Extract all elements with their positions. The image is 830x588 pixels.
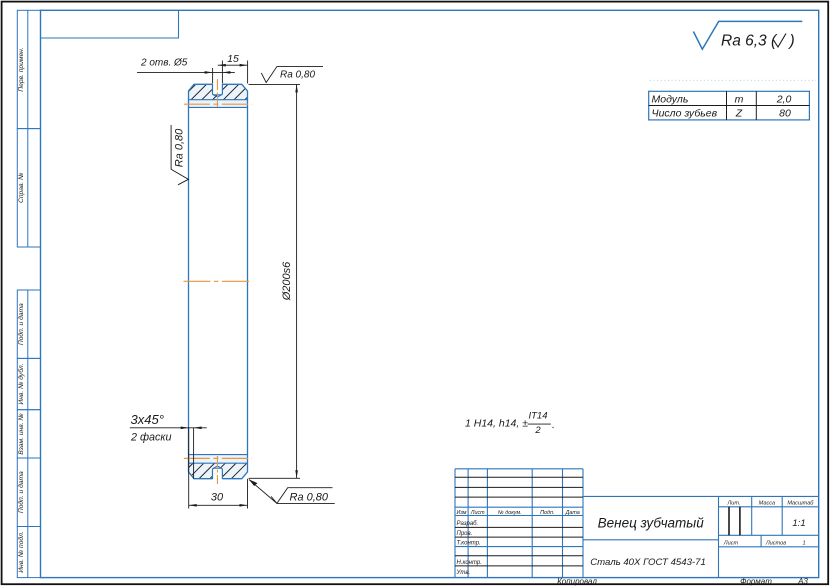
svg-text:№ докум.: № докум. bbox=[498, 510, 522, 516]
svg-text:Лист: Лист bbox=[723, 540, 739, 546]
svg-text:Подп.: Подп. bbox=[540, 510, 554, 516]
svg-text:Масса: Масса bbox=[759, 501, 776, 507]
svg-text:Модуль: Модуль bbox=[652, 94, 689, 106]
svg-text:80: 80 bbox=[779, 108, 791, 120]
svg-text:1 Н14, h14, ±: 1 Н14, h14, ± bbox=[465, 418, 528, 430]
svg-text:2 фаски: 2 фаски bbox=[130, 432, 172, 444]
svg-text:Справ. №: Справ. № bbox=[18, 173, 25, 203]
svg-text:2: 2 bbox=[534, 425, 541, 436]
svg-text:Z: Z bbox=[735, 108, 743, 120]
svg-text:30: 30 bbox=[211, 492, 224, 504]
svg-text:Взам. инв. №: Взам. инв. № bbox=[18, 413, 25, 454]
svg-text:15: 15 bbox=[227, 53, 239, 65]
svg-text:Подп. и дата: Подп. и дата bbox=[17, 303, 25, 345]
svg-text:Ra 0,80: Ra 0,80 bbox=[174, 128, 186, 167]
svg-text:Ra 6,3 (: Ra 6,3 ( bbox=[721, 33, 778, 50]
svg-text:Масштаб: Масштаб bbox=[787, 501, 814, 507]
svg-text:Дата: Дата bbox=[565, 510, 580, 516]
svg-text:Инв. № дубл.: Инв. № дубл. bbox=[17, 363, 25, 404]
svg-text:1:1: 1:1 bbox=[792, 518, 805, 529]
svg-text:Изм: Изм bbox=[457, 510, 467, 516]
svg-text:3х45°: 3х45° bbox=[131, 412, 164, 427]
svg-text:Инв. № подл.: Инв. № подл. bbox=[17, 531, 25, 573]
svg-text:Пров.: Пров. bbox=[457, 531, 473, 537]
svg-text:2 отв. Ø5: 2 отв. Ø5 bbox=[140, 58, 188, 69]
svg-text:Копировал: Копировал bbox=[557, 577, 597, 586]
svg-text:IT14: IT14 bbox=[528, 411, 547, 422]
svg-text:А3: А3 bbox=[797, 577, 808, 586]
svg-text:Листов: Листов bbox=[765, 541, 786, 547]
svg-text:Лит.: Лит. bbox=[726, 501, 740, 507]
svg-text:Формат: Формат bbox=[740, 577, 772, 586]
svg-text:2,0: 2,0 bbox=[776, 94, 792, 106]
svg-text:Венец зубчатый: Венец зубчатый bbox=[598, 516, 705, 531]
svg-text:1: 1 bbox=[802, 541, 805, 547]
svg-text:Ø200s6: Ø200s6 bbox=[281, 261, 293, 301]
svg-text:Утв.: Утв. bbox=[456, 570, 471, 576]
svg-text:Число зубьев: Число зубьев bbox=[652, 108, 718, 120]
svg-text:Сталь 40Х ГОСТ 4543-71: Сталь 40Х ГОСТ 4543-71 bbox=[590, 557, 706, 568]
svg-text:): ) bbox=[788, 33, 795, 50]
svg-text:Ra 0,80: Ra 0,80 bbox=[280, 70, 315, 81]
svg-text:Т.контр.: Т.контр. bbox=[457, 541, 481, 547]
svg-text:Лист: Лист bbox=[470, 510, 485, 516]
svg-text:m: m bbox=[735, 94, 744, 106]
svg-text:Перв. примен.: Перв. примен. bbox=[18, 47, 25, 92]
svg-text:Ra 0,80: Ra 0,80 bbox=[290, 492, 329, 504]
svg-text:Подп. и дата: Подп. и дата bbox=[17, 471, 25, 513]
svg-text:.: . bbox=[552, 419, 555, 431]
svg-text:Н.контр.: Н.контр. bbox=[457, 560, 482, 566]
svg-text:Разраб.: Разраб. bbox=[457, 521, 479, 527]
